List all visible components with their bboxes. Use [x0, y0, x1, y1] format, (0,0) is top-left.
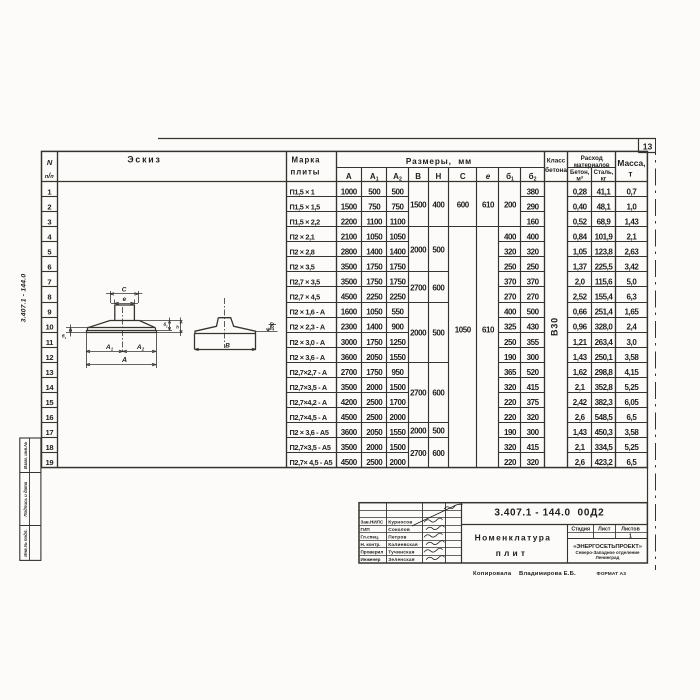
svg-text:2,42: 2,42 [573, 398, 588, 407]
svg-text:1500: 1500 [390, 383, 407, 392]
svg-text:2300: 2300 [341, 323, 358, 332]
svg-text:е: е [123, 296, 127, 303]
svg-text:13: 13 [643, 141, 653, 151]
svg-text:19: 19 [46, 458, 54, 467]
svg-text:600: 600 [432, 449, 445, 458]
svg-text:1,21: 1,21 [573, 338, 588, 347]
svg-text:2200: 2200 [341, 217, 358, 226]
svg-text:Номенклатура: Номенклатура [475, 533, 552, 543]
svg-text:2500: 2500 [366, 458, 383, 467]
svg-text:П2,7×2,7 - А: П2,7×2,7 - А [290, 368, 328, 377]
svg-text:18: 18 [46, 443, 54, 452]
svg-text:7: 7 [47, 278, 51, 287]
svg-text:2,4: 2,4 [627, 323, 638, 332]
svg-text:Гл.спец.: Гл.спец. [361, 534, 380, 539]
svg-text:Н: Н [436, 172, 442, 181]
svg-text:П2,7×4,5 - А: П2,7×4,5 - А [290, 413, 328, 422]
svg-text:Подпись и дата: Подпись и дата [23, 481, 28, 516]
svg-text:1,0: 1,0 [627, 202, 638, 211]
svg-text:П2,7×3,5 - А: П2,7×3,5 - А [290, 383, 328, 392]
svg-text:ГИП: ГИП [361, 527, 370, 532]
svg-text:В: В [225, 343, 230, 350]
svg-text:2250: 2250 [390, 293, 407, 302]
svg-text:5,0: 5,0 [627, 278, 638, 287]
svg-text:C: C [122, 286, 127, 293]
svg-text:415: 415 [527, 383, 540, 392]
svg-text:1750: 1750 [390, 263, 407, 272]
svg-text:Стадия: Стадия [571, 527, 590, 533]
svg-text:В30: В30 [549, 317, 559, 336]
svg-text:0,52: 0,52 [573, 217, 588, 226]
svg-text:Зав.НИЛС: Зав.НИЛС [361, 519, 384, 524]
svg-text:11: 11 [46, 338, 54, 347]
svg-text:1050: 1050 [366, 308, 383, 317]
svg-text:370: 370 [504, 278, 517, 287]
svg-text:С: С [460, 172, 466, 181]
svg-text:2700: 2700 [410, 283, 427, 292]
svg-text:200: 200 [504, 201, 517, 210]
svg-text:610: 610 [482, 326, 495, 335]
svg-text:320: 320 [504, 383, 517, 392]
svg-text:Н. контр.: Н. контр. [361, 542, 381, 547]
svg-text:Взам. инв.№: Взам. инв.№ [23, 442, 28, 469]
svg-text:2,1: 2,1 [575, 383, 586, 392]
svg-text:материалов: материалов [574, 163, 610, 169]
svg-text:500: 500 [392, 187, 405, 196]
svg-text:П1,5 × 2,2: П1,5 × 2,2 [290, 217, 321, 226]
svg-text:П2 × 3,5: П2 × 3,5 [290, 263, 315, 272]
svg-text:2700: 2700 [410, 449, 427, 458]
svg-text:П2,7 × 4,5: П2,7 × 4,5 [290, 293, 321, 302]
svg-text:3500: 3500 [341, 383, 358, 392]
svg-text:750: 750 [368, 202, 381, 211]
svg-text:1,65: 1,65 [625, 308, 640, 317]
svg-text:Копировала: Копировала [473, 571, 512, 577]
svg-text:334,5: 334,5 [595, 443, 614, 452]
svg-text:1,43: 1,43 [573, 353, 588, 362]
svg-text:1500: 1500 [341, 202, 358, 211]
svg-text:3,0: 3,0 [627, 338, 638, 347]
svg-text:0,66: 0,66 [573, 308, 588, 317]
svg-text:123,8: 123,8 [595, 247, 614, 256]
svg-text:П2 × 3,0 - А: П2 × 3,0 - А [290, 338, 326, 347]
svg-text:250: 250 [504, 263, 517, 272]
svg-text:10: 10 [46, 323, 54, 332]
svg-text:кг: кг [601, 176, 607, 182]
svg-text:П1,5 × 1: П1,5 × 1 [290, 187, 315, 196]
svg-text:3000: 3000 [341, 338, 358, 347]
svg-text:415: 415 [527, 443, 540, 452]
svg-text:2250: 2250 [366, 293, 383, 302]
svg-text:0,84: 0,84 [573, 232, 588, 241]
svg-text:1,37: 1,37 [573, 263, 588, 272]
svg-text:48,1: 48,1 [597, 202, 612, 211]
svg-text:2,1: 2,1 [575, 443, 586, 452]
svg-text:1050: 1050 [390, 232, 407, 241]
svg-text:3.407.1 - 144.0: 3.407.1 - 144.0 [494, 507, 570, 518]
svg-text:П2,7×4,2 - А: П2,7×4,2 - А [290, 398, 328, 407]
svg-text:4500: 4500 [341, 293, 358, 302]
svg-text:68,9: 68,9 [597, 217, 612, 226]
svg-text:е: е [486, 172, 491, 181]
svg-text:3,58: 3,58 [625, 353, 640, 362]
svg-text:Владимирова Е.Б.: Владимирова Е.Б. [519, 571, 576, 577]
svg-text:430: 430 [527, 323, 540, 332]
svg-text:2050: 2050 [366, 428, 383, 437]
svg-text:4500: 4500 [341, 458, 358, 467]
svg-text:N: N [47, 158, 53, 167]
svg-text:2,6: 2,6 [575, 413, 586, 422]
svg-text:Тучинская: Тучинская [388, 549, 414, 555]
svg-text:1750: 1750 [366, 338, 383, 347]
svg-text:2,6: 2,6 [575, 458, 586, 467]
svg-text:2000: 2000 [410, 246, 427, 255]
svg-text:382,3: 382,3 [595, 398, 614, 407]
svg-text:Петров: Петров [388, 534, 406, 540]
svg-text:1600: 1600 [341, 308, 358, 317]
svg-text:6,5: 6,5 [627, 458, 638, 467]
svg-text:220: 220 [504, 413, 517, 422]
svg-text:4200: 4200 [341, 398, 358, 407]
svg-text:1: 1 [629, 534, 632, 540]
svg-text:1750: 1750 [366, 263, 383, 272]
svg-text:900: 900 [392, 323, 405, 332]
svg-text:400: 400 [504, 308, 517, 317]
svg-text:190: 190 [504, 428, 517, 437]
svg-text:370: 370 [527, 278, 540, 287]
svg-text:плит: плит [496, 548, 528, 558]
svg-text:400: 400 [527, 232, 540, 241]
svg-text:А: А [346, 172, 352, 181]
svg-text:2,63: 2,63 [625, 247, 640, 256]
svg-text:ФОРМАТ А3: ФОРМАТ А3 [597, 571, 627, 577]
svg-text:1050: 1050 [455, 326, 472, 335]
svg-text:5,25: 5,25 [625, 383, 640, 392]
svg-text:Класс: Класс [547, 157, 566, 164]
svg-text:423,2: 423,2 [595, 458, 614, 467]
svg-text:115,6: 115,6 [595, 278, 613, 287]
svg-text:500: 500 [432, 426, 445, 435]
svg-text:1100: 1100 [366, 217, 383, 226]
svg-text:400: 400 [504, 232, 517, 241]
svg-text:16: 16 [46, 413, 54, 422]
svg-text:5,25: 5,25 [625, 443, 640, 452]
svg-text:500: 500 [432, 246, 445, 255]
svg-text:14: 14 [46, 383, 55, 392]
svg-text:320: 320 [504, 443, 517, 452]
svg-text:1400: 1400 [390, 247, 407, 256]
svg-text:1250: 1250 [390, 338, 407, 347]
svg-text:190: 190 [504, 353, 517, 362]
svg-text:Ленинград: Ленинград [596, 555, 620, 560]
svg-text:Лист: Лист [598, 527, 611, 533]
svg-text:2000: 2000 [410, 426, 427, 435]
svg-text:250: 250 [527, 263, 540, 272]
svg-text:15: 15 [46, 398, 55, 407]
svg-text:А: А [121, 357, 127, 364]
svg-text:1100: 1100 [390, 217, 407, 226]
svg-text:П2 × 2,8: П2 × 2,8 [290, 247, 315, 256]
svg-text:3600: 3600 [341, 428, 358, 437]
svg-text:3600: 3600 [341, 353, 358, 362]
svg-text:1500: 1500 [410, 201, 427, 210]
svg-text:П2,7× 4,5 - А5: П2,7× 4,5 - А5 [290, 458, 333, 467]
svg-text:0,40: 0,40 [573, 202, 588, 211]
svg-text:П2,7×3,5 - А5: П2,7×3,5 - А5 [290, 443, 331, 452]
svg-text:0,7: 0,7 [627, 187, 638, 196]
svg-text:плиты: плиты [291, 168, 321, 177]
svg-text:101,9: 101,9 [595, 232, 614, 241]
svg-text:6,3: 6,3 [627, 293, 638, 302]
svg-text:2800: 2800 [341, 247, 358, 256]
svg-text:352,8: 352,8 [595, 383, 614, 392]
svg-text:41,1: 41,1 [597, 187, 612, 196]
svg-text:2,0: 2,0 [575, 278, 586, 287]
svg-text:1750: 1750 [390, 278, 407, 287]
svg-text:263,4: 263,4 [595, 338, 614, 347]
svg-text:600: 600 [432, 283, 445, 292]
svg-text:2500: 2500 [366, 398, 383, 407]
svg-text:290: 290 [527, 202, 540, 211]
svg-text:1500: 1500 [390, 443, 407, 452]
svg-text:00Д2: 00Д2 [577, 507, 604, 518]
svg-text:П2 × 3,6 - А5: П2 × 3,6 - А5 [290, 428, 329, 437]
svg-text:П2 × 3,6 - А: П2 × 3,6 - А [290, 353, 326, 362]
svg-text:1,62: 1,62 [573, 368, 588, 377]
svg-text:2000: 2000 [410, 329, 427, 338]
svg-text:2000: 2000 [390, 413, 407, 422]
svg-text:160: 160 [527, 217, 540, 226]
svg-text:2000: 2000 [366, 383, 383, 392]
svg-text:Размеры, мм: Размеры, мм [406, 157, 472, 166]
svg-text:3,58: 3,58 [625, 428, 640, 437]
svg-text:320: 320 [504, 247, 517, 256]
svg-text:500: 500 [432, 329, 445, 338]
svg-text:300: 300 [527, 428, 540, 437]
svg-text:1700: 1700 [390, 398, 407, 407]
svg-text:2,52: 2,52 [573, 293, 588, 302]
svg-text:3500: 3500 [341, 278, 358, 287]
svg-text:П2,7 × 3,5: П2,7 × 3,5 [290, 278, 321, 287]
svg-text:1050: 1050 [366, 232, 383, 241]
svg-text:т: т [628, 170, 632, 179]
svg-text:0,28: 0,28 [573, 187, 588, 196]
svg-text:750: 750 [392, 202, 405, 211]
svg-text:500: 500 [527, 308, 540, 317]
svg-text:2000: 2000 [390, 458, 407, 467]
svg-text:П2 × 2,1: П2 × 2,1 [290, 232, 315, 241]
svg-text:2,1: 2,1 [627, 232, 638, 241]
svg-text:520: 520 [527, 368, 540, 377]
svg-text:Масса,: Масса, [617, 158, 645, 168]
svg-text:Калиевская: Калиевская [388, 542, 418, 548]
svg-text:225,5: 225,5 [595, 263, 614, 272]
svg-text:Инв.№ подл.: Инв.№ подл. [23, 529, 28, 556]
svg-text:Инженер: Инженер [361, 557, 381, 562]
svg-text:500: 500 [368, 187, 381, 196]
svg-text:2: 2 [47, 202, 51, 211]
svg-text:250: 250 [504, 338, 517, 347]
svg-text:320: 320 [527, 458, 540, 467]
svg-text:1550: 1550 [390, 353, 407, 362]
svg-text:Зеленская: Зеленская [388, 557, 415, 563]
svg-text:П2 × 2,3 - А: П2 × 2,3 - А [290, 323, 326, 332]
svg-text:П2 × 1,6 - А: П2 × 1,6 - А [290, 308, 326, 317]
svg-text:3: 3 [47, 217, 51, 226]
svg-text:548,5: 548,5 [595, 413, 614, 422]
svg-text:3.407.1 - 144.0: 3.407.1 - 144.0 [21, 274, 28, 323]
svg-text:1,05: 1,05 [573, 247, 588, 256]
svg-text:1,43: 1,43 [573, 428, 588, 437]
svg-text:2700: 2700 [341, 368, 358, 377]
svg-text:1400: 1400 [366, 247, 383, 256]
svg-text:8: 8 [47, 293, 51, 302]
svg-text:600: 600 [457, 201, 470, 210]
svg-text:Листов: Листов [621, 527, 640, 533]
svg-text:298,8: 298,8 [595, 368, 614, 377]
svg-text:9: 9 [47, 308, 51, 317]
svg-text:13: 13 [46, 368, 54, 377]
svg-text:320: 320 [527, 247, 540, 256]
svg-text:2000: 2000 [366, 443, 383, 452]
svg-text:12: 12 [46, 353, 54, 362]
svg-text:h: h [176, 325, 179, 330]
svg-text:320: 320 [527, 413, 540, 422]
svg-text:550: 550 [392, 308, 405, 317]
svg-text:2500: 2500 [366, 413, 383, 422]
svg-text:2050: 2050 [366, 353, 383, 362]
svg-text:П1,5 × 1,5: П1,5 × 1,5 [290, 202, 321, 211]
svg-text:17: 17 [46, 428, 54, 437]
svg-text:375: 375 [527, 398, 540, 407]
svg-text:270: 270 [527, 293, 540, 302]
svg-text:155,4: 155,4 [595, 293, 614, 302]
svg-text:600: 600 [432, 389, 445, 398]
svg-text:380: 380 [527, 187, 540, 196]
svg-text:328,0: 328,0 [595, 323, 614, 332]
svg-text:В: В [415, 172, 421, 181]
svg-text:950: 950 [392, 368, 405, 377]
svg-text:Проверил: Проверил [361, 549, 384, 554]
svg-text:300: 300 [527, 353, 540, 362]
svg-text:Эскиз: Эскиз [127, 154, 161, 164]
svg-text:1750: 1750 [366, 278, 383, 287]
svg-text:3500: 3500 [341, 263, 358, 272]
svg-text:2100: 2100 [341, 232, 358, 241]
svg-text:220: 220 [504, 398, 517, 407]
svg-text:Сталь,: Сталь, [594, 170, 614, 176]
svg-text:1,43: 1,43 [625, 217, 640, 226]
svg-text:3500: 3500 [341, 443, 358, 452]
svg-text:270: 270 [504, 293, 517, 302]
svg-text:0,96: 0,96 [573, 323, 588, 332]
svg-text:Расход: Расход [581, 155, 603, 162]
svg-text:1750: 1750 [366, 368, 383, 377]
svg-text:Курносов: Курносов [388, 519, 412, 525]
svg-text:4,15: 4,15 [625, 368, 640, 377]
svg-text:3,42: 3,42 [625, 263, 640, 272]
svg-text:325: 325 [504, 323, 517, 332]
svg-text:4500: 4500 [341, 413, 358, 422]
svg-text:365: 365 [504, 368, 517, 377]
svg-text:2700: 2700 [410, 389, 427, 398]
svg-text:1000: 1000 [341, 187, 358, 196]
svg-text:6,05: 6,05 [625, 398, 640, 407]
svg-text:Марка: Марка [292, 155, 321, 164]
svg-text:355: 355 [527, 338, 540, 347]
svg-text:450,3: 450,3 [595, 428, 614, 437]
svg-text:6: 6 [47, 263, 51, 272]
svg-text:220: 220 [504, 458, 517, 467]
svg-text:250,1: 250,1 [595, 353, 614, 362]
svg-text:1400: 1400 [366, 323, 383, 332]
svg-text:400: 400 [432, 201, 445, 210]
svg-text:610: 610 [482, 201, 495, 210]
svg-text:бетона: бетона [545, 166, 567, 174]
svg-text:1550: 1550 [390, 428, 407, 437]
svg-text:Соколов: Соколов [388, 527, 410, 533]
svg-text:6,5: 6,5 [627, 413, 638, 422]
svg-text:251,4: 251,4 [595, 308, 614, 317]
